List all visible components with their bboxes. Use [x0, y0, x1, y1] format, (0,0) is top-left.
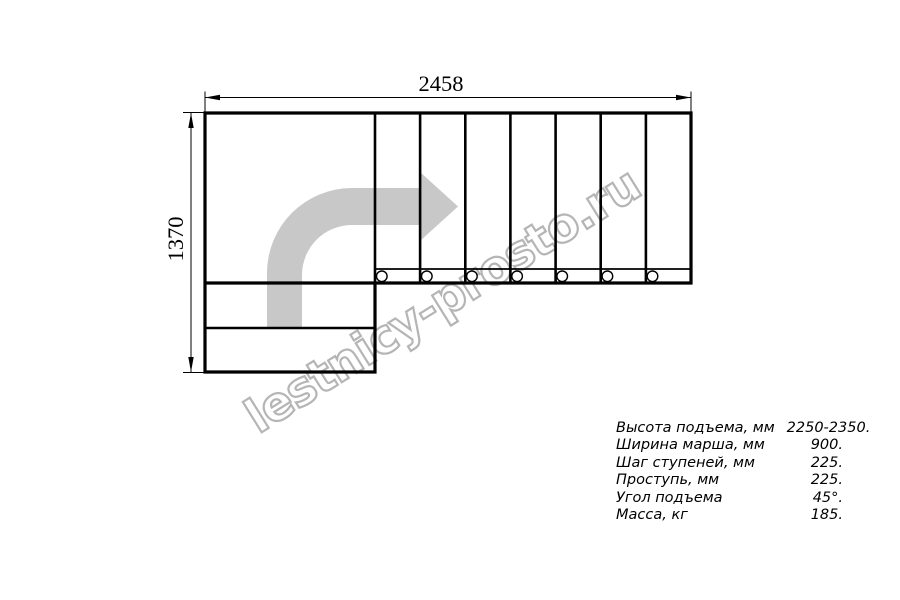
- baluster-circle: [377, 271, 388, 282]
- spec-row: Угол подъема 45°.: [616, 490, 843, 507]
- spec-label: Шаг ступеней, мм: [616, 455, 755, 472]
- spec-label: Угол подъема: [616, 490, 723, 507]
- spec-list: Высота подъема, мм 2250-2350. Ширина мар…: [616, 420, 843, 524]
- height-dimension-label: 1370: [163, 217, 188, 262]
- baluster-circle: [602, 271, 613, 282]
- spec-label: Высота подъема, мм: [616, 420, 775, 437]
- dimension-arrow-left-icon: [205, 95, 220, 100]
- baluster-markers: [377, 271, 658, 282]
- spec-label: Ширина марша, мм: [616, 437, 765, 454]
- spec-value: 225.: [811, 455, 843, 472]
- spec-row: Проступь, мм 225.: [616, 472, 843, 489]
- spec-value: 900.: [811, 437, 843, 454]
- spec-value: 185.: [811, 507, 843, 524]
- spec-row: Ширина марша, мм 900.: [616, 437, 843, 454]
- spec-row: Высота подъема, мм 2250-2350.: [616, 420, 843, 437]
- spec-row: Шаг ступеней, мм 225.: [616, 455, 843, 472]
- spec-row: Масса, кг 185.: [616, 507, 843, 524]
- dimension-arrow-down-icon: [188, 357, 193, 372]
- baluster-circle: [647, 271, 658, 282]
- staircase-plan-drawing: lestnicy-prosto.ru: [0, 0, 900, 600]
- spec-value: 45°.: [813, 490, 843, 507]
- dimension-arrow-up-icon: [188, 113, 193, 128]
- baluster-circle: [422, 271, 433, 282]
- dimension-arrow-right-icon: [676, 95, 691, 100]
- spec-label: Масса, кг: [616, 507, 688, 524]
- spec-label: Проступь, мм: [616, 472, 719, 489]
- spec-value: 225.: [811, 472, 843, 489]
- baluster-circle: [512, 271, 523, 282]
- spec-value: 2250-2350.: [787, 420, 871, 437]
- baluster-circle: [467, 271, 478, 282]
- width-dimension-label: 2458: [419, 71, 464, 96]
- baluster-circle: [557, 271, 568, 282]
